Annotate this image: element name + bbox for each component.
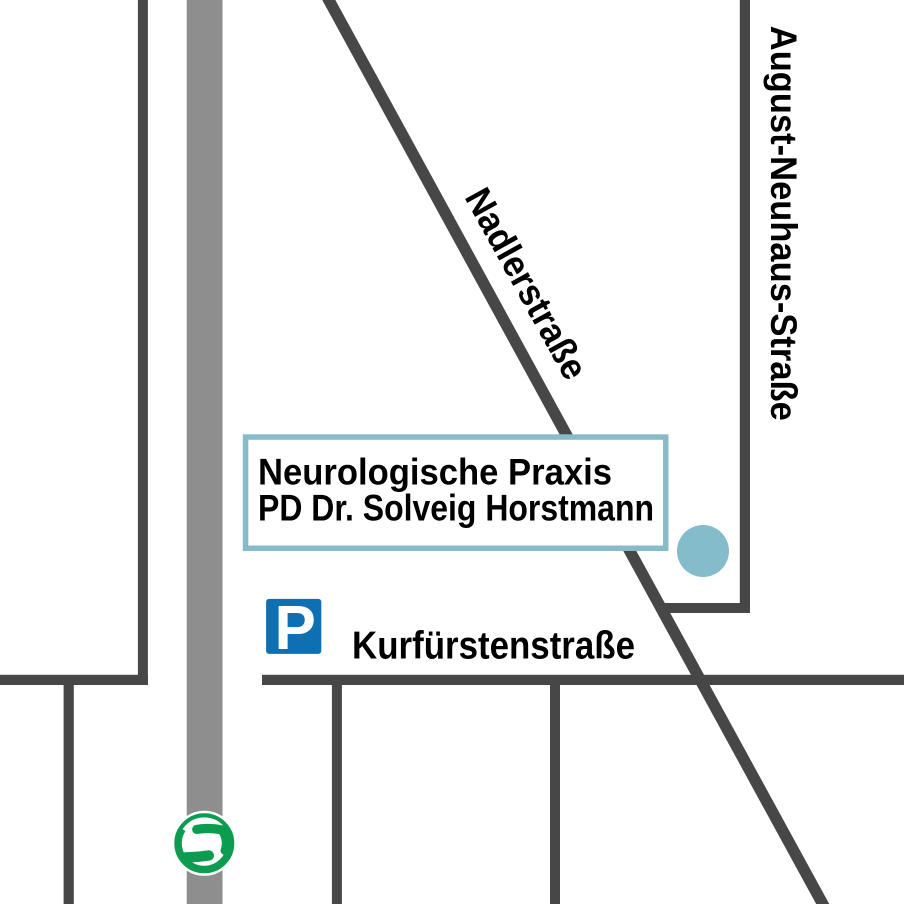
svg-text:August-Neuhaus-Straße: August-Neuhaus-Straße	[763, 26, 804, 421]
svg-text:Neurologische Praxis: Neurologische Praxis	[258, 452, 612, 493]
svg-text:Kurfürstenstraße: Kurfürstenstraße	[352, 625, 635, 668]
svg-text:PD Dr. Solveig Horstmann: PD Dr. Solveig Horstmann	[258, 488, 654, 529]
svg-text:P: P	[275, 594, 316, 663]
